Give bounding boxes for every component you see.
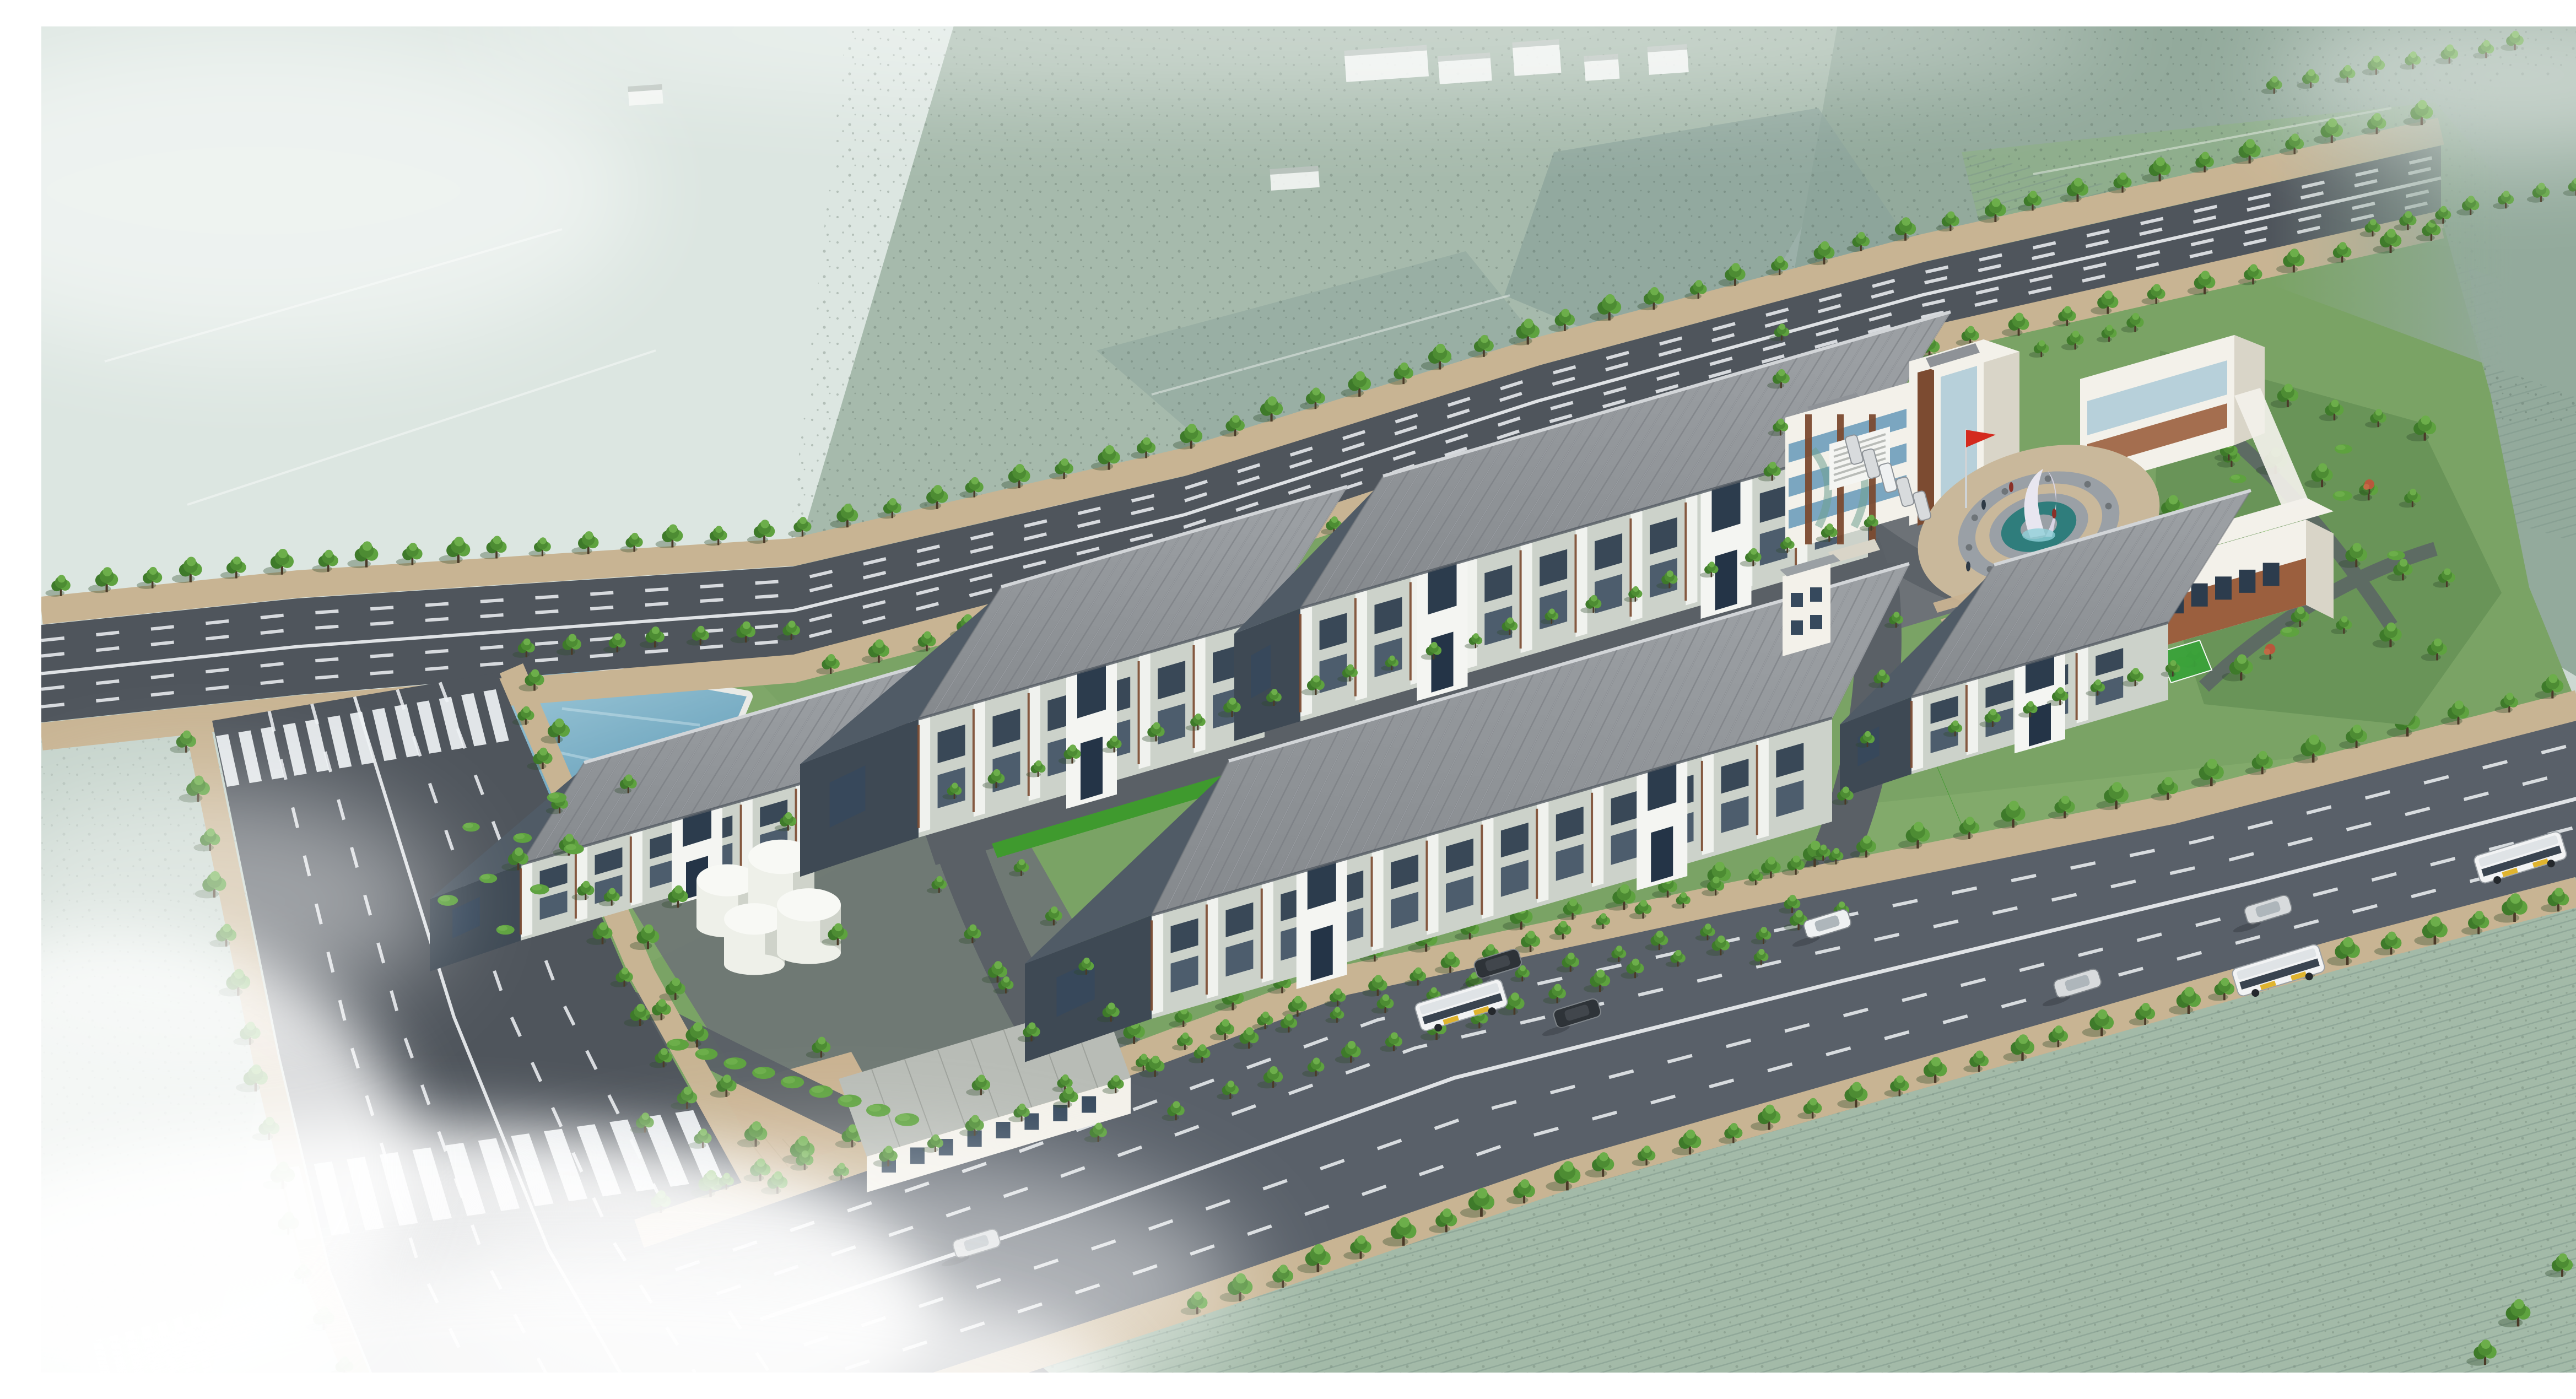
- bush: [2335, 444, 2352, 453]
- workshop-2-pilaster: [1686, 494, 1697, 606]
- frame-left: [22, 9, 41, 1390]
- workshop-2-entrance-door: [1715, 550, 1737, 611]
- workshop-1-pilaster: [974, 700, 985, 817]
- workshop-3-pilaster: [1427, 832, 1438, 935]
- bush: [781, 1076, 804, 1088]
- person: [1966, 561, 1970, 571]
- gatehouse-window: [1791, 593, 1803, 607]
- annex-s-window: [2215, 576, 2232, 599]
- bush: [2229, 474, 2246, 483]
- scene-canvas: [22, 9, 2576, 1390]
- annex-s-window: [2263, 563, 2280, 586]
- bush: [2387, 550, 2405, 560]
- workshop-1-entrance-door: [1081, 737, 1103, 800]
- bush: [695, 1048, 718, 1060]
- person: [2052, 509, 2056, 518]
- workshop-4-pilaster: [1911, 694, 1923, 771]
- bush: [2332, 490, 2352, 501]
- workshop-1-pilaster: [1194, 636, 1205, 753]
- tank-top: [777, 888, 841, 921]
- fountain-spray: [2022, 528, 2055, 542]
- bush: [513, 833, 532, 843]
- bush: [2280, 627, 2299, 637]
- bush: [838, 1094, 862, 1107]
- workshop-1-pilaster: [1139, 652, 1151, 769]
- workshop-3-pilaster: [1757, 736, 1769, 839]
- workshop-3-pilaster: [1262, 880, 1273, 983]
- workshop-4-pilaster: [2077, 646, 2088, 723]
- annex-s-side: [2306, 520, 2334, 619]
- workshop-1-pilaster: [1029, 684, 1040, 801]
- workshop-3-pilaster: [1482, 816, 1493, 919]
- bush: [895, 1113, 920, 1126]
- workshop-3-pilaster: [1537, 800, 1548, 903]
- tank-top: [724, 903, 785, 935]
- workshop-2-pilaster: [1355, 589, 1367, 701]
- annex-s-window: [2239, 570, 2255, 593]
- bush: [723, 1057, 746, 1069]
- workshop-2-pilaster: [1300, 605, 1312, 717]
- annex-window: [1082, 1096, 1096, 1113]
- pump-house-pilaster: [631, 829, 642, 906]
- workshop-3-pilaster: [1702, 752, 1714, 855]
- gatehouse-wall: [1783, 563, 1830, 656]
- frame-bottom: [22, 1373, 2576, 1390]
- person: [1981, 500, 1986, 510]
- annex-s-window: [2191, 584, 2208, 607]
- gatehouse-window: [1791, 620, 1803, 635]
- frame-top: [22, 9, 2576, 26]
- workshop-2-pilaster: [1576, 525, 1587, 637]
- workshop-3-entrance-door: [1651, 826, 1673, 882]
- workshop-3-pilaster: [1372, 848, 1384, 951]
- bush: [547, 792, 567, 803]
- bush: [564, 844, 584, 854]
- pump-house-pilaster: [521, 861, 532, 938]
- annex-window: [996, 1122, 1011, 1138]
- bush: [479, 874, 497, 883]
- bush: [809, 1085, 833, 1098]
- bush: [530, 884, 549, 894]
- aerial-rendering: [22, 9, 2576, 1390]
- workshop-2-pilaster: [1521, 541, 1532, 653]
- workshop-2-pilaster: [1630, 509, 1642, 621]
- gatehouse-window: [1810, 587, 1822, 602]
- bush: [496, 925, 515, 935]
- bush: [866, 1104, 890, 1116]
- workshop-3-entrance-door: [1311, 925, 1333, 981]
- workshop-3-pilaster: [1152, 912, 1163, 1015]
- workshop-1-pilaster: [919, 716, 930, 833]
- bush: [752, 1067, 775, 1079]
- workshop-3-pilaster: [1207, 896, 1218, 999]
- bush: [667, 1039, 689, 1050]
- gatehouse-window: [1810, 615, 1822, 629]
- tank-base: [724, 954, 785, 975]
- workshop-2-entrance-door: [1432, 632, 1454, 693]
- workshop-4-pilaster: [1967, 678, 1978, 755]
- workshop-3-pilaster: [1592, 784, 1603, 887]
- bush: [462, 823, 480, 832]
- person: [2009, 482, 2013, 492]
